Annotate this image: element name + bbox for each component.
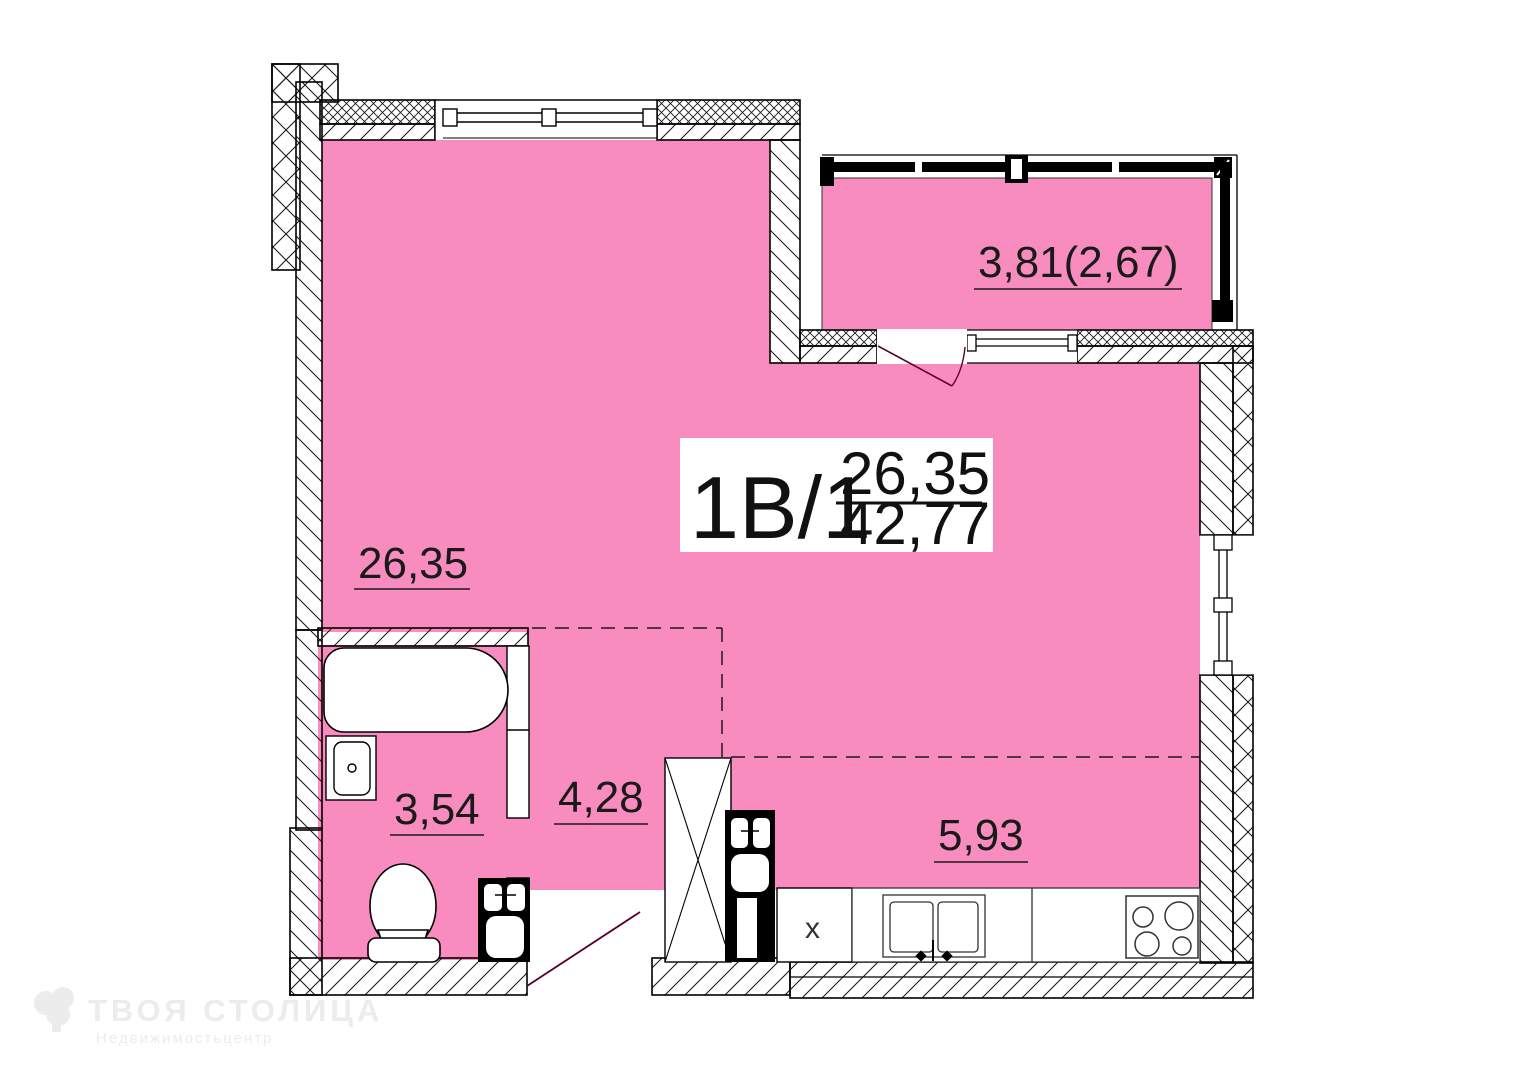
- hallway-area-label: 4,28: [558, 773, 644, 822]
- watermark-brand: ТВОЯ СТОЛИЦА: [88, 993, 383, 1028]
- window-right: [1200, 535, 1253, 675]
- washing-machine: x: [777, 888, 852, 962]
- hall-kitchen-fill: [528, 630, 1200, 890]
- floor-plan-svg: ТВОЯ СТОЛИЦА Недвижимостьцентр: [0, 0, 1527, 1080]
- wall-left: [296, 82, 322, 630]
- wall-bottom-bathroom: [290, 958, 527, 995]
- kitchen-area-label: 5,93: [938, 811, 1024, 860]
- title-block: 1В/1 26,35 42,77: [680, 438, 993, 557]
- window-balcony-wall: [967, 330, 1077, 363]
- wall-top-right-band2: [657, 124, 800, 140]
- window-top: [435, 100, 657, 140]
- wall-bottom-kitchen: [790, 962, 1253, 998]
- balcony-area-label: 3,81(2,67): [978, 238, 1179, 287]
- vent-shaft: [665, 758, 731, 962]
- wall-balcony-south-right1: [1077, 330, 1253, 346]
- washing-machine-mark: x: [805, 912, 820, 945]
- wall-top-left-band2: [320, 124, 435, 140]
- balcony-glazing-post-left: [820, 157, 834, 186]
- bath-sink: [326, 736, 376, 800]
- balcony-door-opening: [877, 329, 967, 364]
- wall-right-upper-outer: [1233, 346, 1253, 535]
- wall-balcony-south-right2: [1077, 346, 1253, 363]
- area-lower: 42,77: [840, 490, 990, 557]
- partition-upper: [507, 646, 529, 818]
- wall-bathroom-top: [318, 628, 528, 646]
- wall-top-left-band1: [320, 100, 435, 124]
- wall-room-balcony-divider: [770, 140, 800, 363]
- balcony-glazing-post-bottom: [1212, 300, 1233, 322]
- living-area-label: 26,35: [358, 539, 468, 588]
- wall-right-lower-outer: [1233, 675, 1253, 963]
- floor-plan-page: ТВОЯ СТОЛИЦА Недвижимостьцентр: [0, 0, 1527, 1080]
- wall-bottom-hall: [652, 958, 790, 995]
- bathroom-area-label: 3,54: [394, 785, 480, 834]
- watermark-sub: Недвижимостьцентр: [96, 1030, 273, 1047]
- wall-left-lower: [296, 630, 322, 830]
- wall-right-upper: [1200, 363, 1233, 535]
- stove: [1126, 896, 1198, 958]
- bath-washbasin-unit: [478, 878, 530, 962]
- wall-balcony-south-left2: [800, 346, 877, 363]
- wall-right-lower: [1200, 675, 1233, 963]
- balcony-glazing-right-bar: [1220, 162, 1230, 318]
- wall-balcony-south-left1: [800, 330, 877, 346]
- bathtub: [324, 648, 508, 732]
- kitchen-sink-unit: [725, 810, 775, 962]
- wall-top-right-band1: [657, 100, 800, 124]
